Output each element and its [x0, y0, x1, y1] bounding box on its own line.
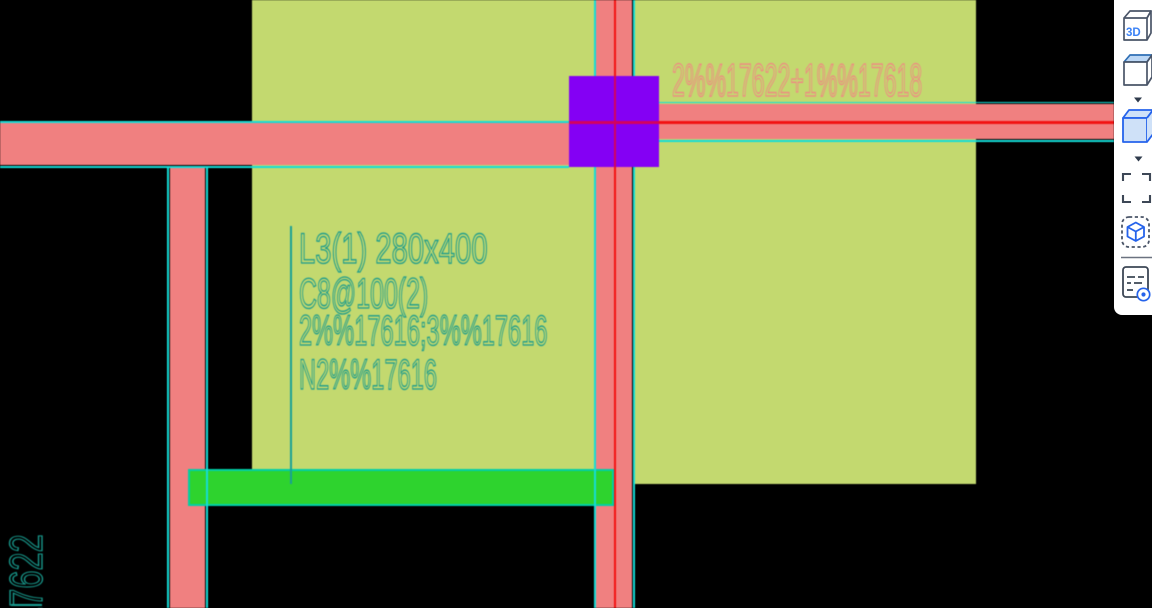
- svg-text:3D: 3D: [1126, 27, 1141, 39]
